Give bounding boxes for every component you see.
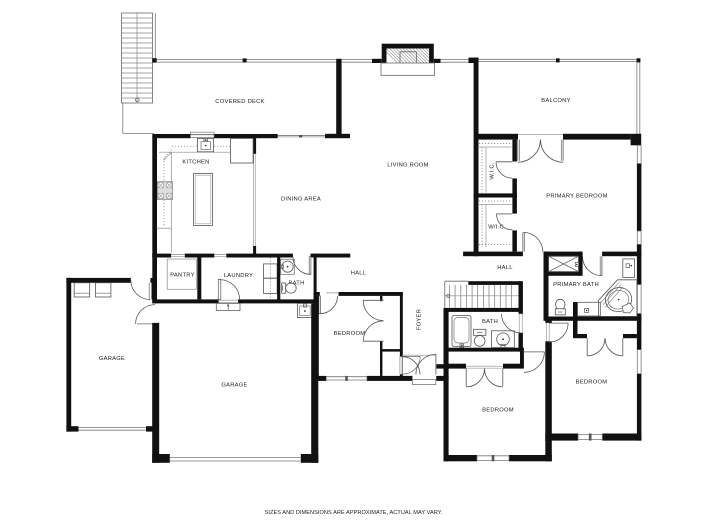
svg-text:BATH: BATH	[482, 319, 498, 325]
svg-text:GARAGE: GARAGE	[221, 382, 247, 388]
svg-text:W.I.C.: W.I.C.	[490, 162, 496, 179]
svg-text:PANTRY: PANTRY	[170, 273, 194, 279]
svg-text:LIVING ROOM: LIVING ROOM	[387, 163, 428, 169]
svg-text:KITCHEN: KITCHEN	[182, 160, 209, 166]
svg-text:W/I.C.: W/I.C.	[488, 225, 506, 231]
svg-text:GARAGE: GARAGE	[99, 356, 125, 362]
svg-text:HALL: HALL	[497, 265, 513, 271]
svg-text:COVERED DECK: COVERED DECK	[215, 99, 264, 105]
svg-text:BEDROOM: BEDROOM	[482, 407, 514, 413]
svg-text:PRIMARY BATH: PRIMARY BATH	[553, 282, 599, 288]
svg-text:HALL: HALL	[351, 271, 367, 277]
svg-text:PRIMARY BEDROOM: PRIMARY BEDROOM	[546, 194, 608, 200]
svg-text:LAUNDRY: LAUNDRY	[224, 273, 253, 279]
svg-text:BEDROOM: BEDROOM	[576, 379, 608, 385]
svg-text:FOYER: FOYER	[417, 309, 423, 330]
svg-text:BALCONY: BALCONY	[541, 98, 570, 104]
svg-text:BEDROOM: BEDROOM	[334, 331, 366, 337]
svg-text:DINING AREA: DINING AREA	[281, 196, 321, 202]
svg-text:SIZES AND DIMENSIONS ARE APPRO: SIZES AND DIMENSIONS ARE APPROXIMATE, AC…	[265, 510, 443, 516]
